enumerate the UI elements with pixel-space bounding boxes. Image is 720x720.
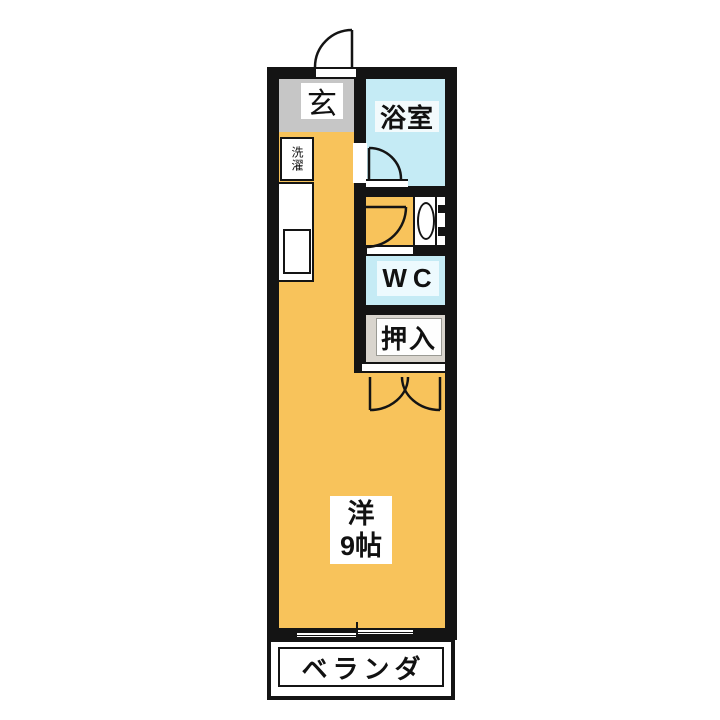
laundry-label: 洗濯 (291, 146, 303, 172)
floor-plan: 洗濯 玄 浴室 WC 押入 洋 (0, 0, 720, 720)
veranda: ベランダ (267, 638, 455, 700)
washing-machine-box: 洗濯 (280, 137, 314, 181)
toilet-tank-mark (438, 205, 445, 213)
closet-label: 押入 (376, 318, 442, 356)
entrance-threshold (314, 67, 358, 79)
bathroom-label: 浴室 (375, 101, 439, 132)
bathroom-door-opening (353, 143, 367, 183)
main-room-type: 洋 (348, 498, 375, 530)
sliding-window-icon (356, 628, 415, 636)
wc-threshold (365, 245, 415, 256)
veranda-label: ベランダ (278, 647, 444, 687)
wc-label: WC (377, 261, 439, 296)
toilet-tank-divider (435, 196, 437, 246)
closet-threshold (362, 362, 445, 373)
main-room-size: 9帖 (340, 530, 382, 562)
bathroom-threshold (366, 179, 408, 187)
toilet-nook-floor (366, 197, 413, 245)
toilet-bowl-icon (417, 202, 435, 240)
kitchen-sink-icon (283, 229, 311, 274)
main-room-label: 洋 9帖 (330, 496, 392, 564)
entrance-label: 玄 (301, 83, 343, 119)
toilet-tank-mark (438, 227, 445, 236)
entrance-door-icon (315, 30, 352, 67)
